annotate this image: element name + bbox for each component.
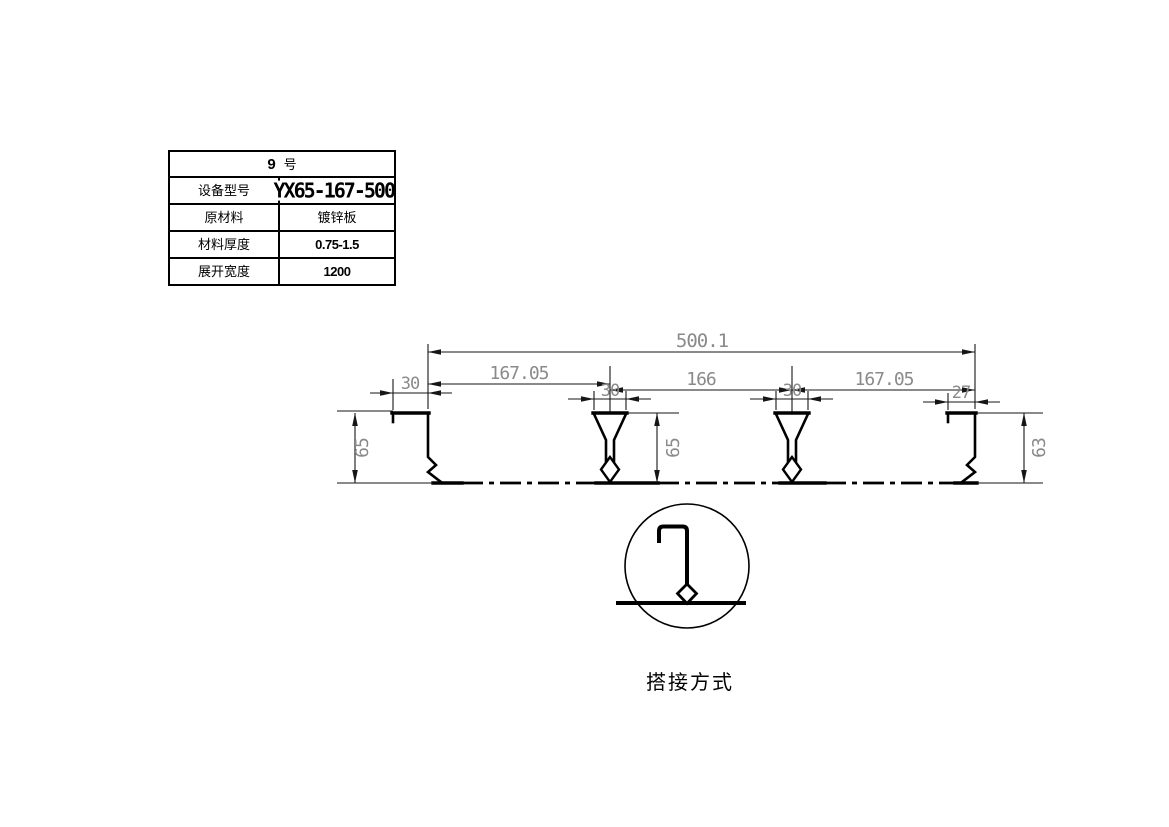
detail-caption: 搭接方式 <box>646 671 734 694</box>
dimension-middle-height: 65 <box>654 413 684 483</box>
arrow-left-icon <box>428 390 441 396</box>
arrow-left-icon <box>428 349 441 355</box>
dim-span-left: 167.05 <box>489 363 548 384</box>
dim-left-height: 65 <box>352 438 373 458</box>
rib2-lock-diamond <box>783 457 801 482</box>
arrow-up-icon <box>654 413 660 426</box>
dim-middle-height: 65 <box>663 438 684 458</box>
dimension-right-height: 63 <box>1021 413 1050 483</box>
dim-span-right: 167.05 <box>854 369 913 390</box>
seam-detail: 搭接方式 <box>618 504 749 694</box>
arrow-right-icon <box>581 396 594 402</box>
dimension-span-left: 167.05 <box>428 363 610 387</box>
arrow-left-icon <box>808 396 821 402</box>
arrow-left-icon <box>975 399 988 405</box>
left-edge-web <box>428 413 441 482</box>
dimension-right-flange: 27 <box>923 383 1000 405</box>
dimension-overall-width: 500.1 <box>428 330 975 355</box>
dim-overall-width: 500.1 <box>676 330 729 352</box>
rib1-lock-diamond <box>601 457 619 482</box>
arrow-right-icon <box>962 349 975 355</box>
dimension-left-height: 65 <box>352 413 373 483</box>
arrow-right-icon <box>763 396 776 402</box>
arrow-up-icon <box>1021 413 1027 426</box>
arrow-down-icon <box>654 470 660 483</box>
detail-upper-sheet <box>659 527 687 586</box>
dim-rib2-top: 30 <box>783 381 802 401</box>
arrow-down-icon <box>352 470 358 483</box>
arrow-right-icon <box>380 390 393 396</box>
dim-right-height: 63 <box>1029 438 1050 458</box>
dim-span-middle: 166 <box>686 369 716 390</box>
rib2-web <box>776 414 808 461</box>
dim-rib1-top: 30 <box>601 381 620 401</box>
arrow-up-icon <box>352 413 358 426</box>
right-edge-web <box>962 413 975 482</box>
arrow-right-icon <box>935 399 948 405</box>
detail-lock-diamond <box>678 584 697 604</box>
dimension-span-middle: 166 <box>610 369 792 393</box>
dim-right-flange: 27 <box>952 383 970 403</box>
dim-left-flange: 30 <box>401 374 420 394</box>
profile-outline <box>392 413 977 483</box>
arrow-left-icon <box>428 381 441 387</box>
arrow-left-icon <box>626 396 639 402</box>
arrow-down-icon <box>1021 470 1027 483</box>
engineering-drawing-canvas: 500.1 167.05 166 167.05 30 30 <box>0 0 1169 827</box>
extension-lines <box>337 344 1043 483</box>
dimension-rib2-top: 30 <box>750 381 833 402</box>
dimension-span-right: 167.05 <box>792 369 975 393</box>
rib1-web <box>594 414 626 461</box>
